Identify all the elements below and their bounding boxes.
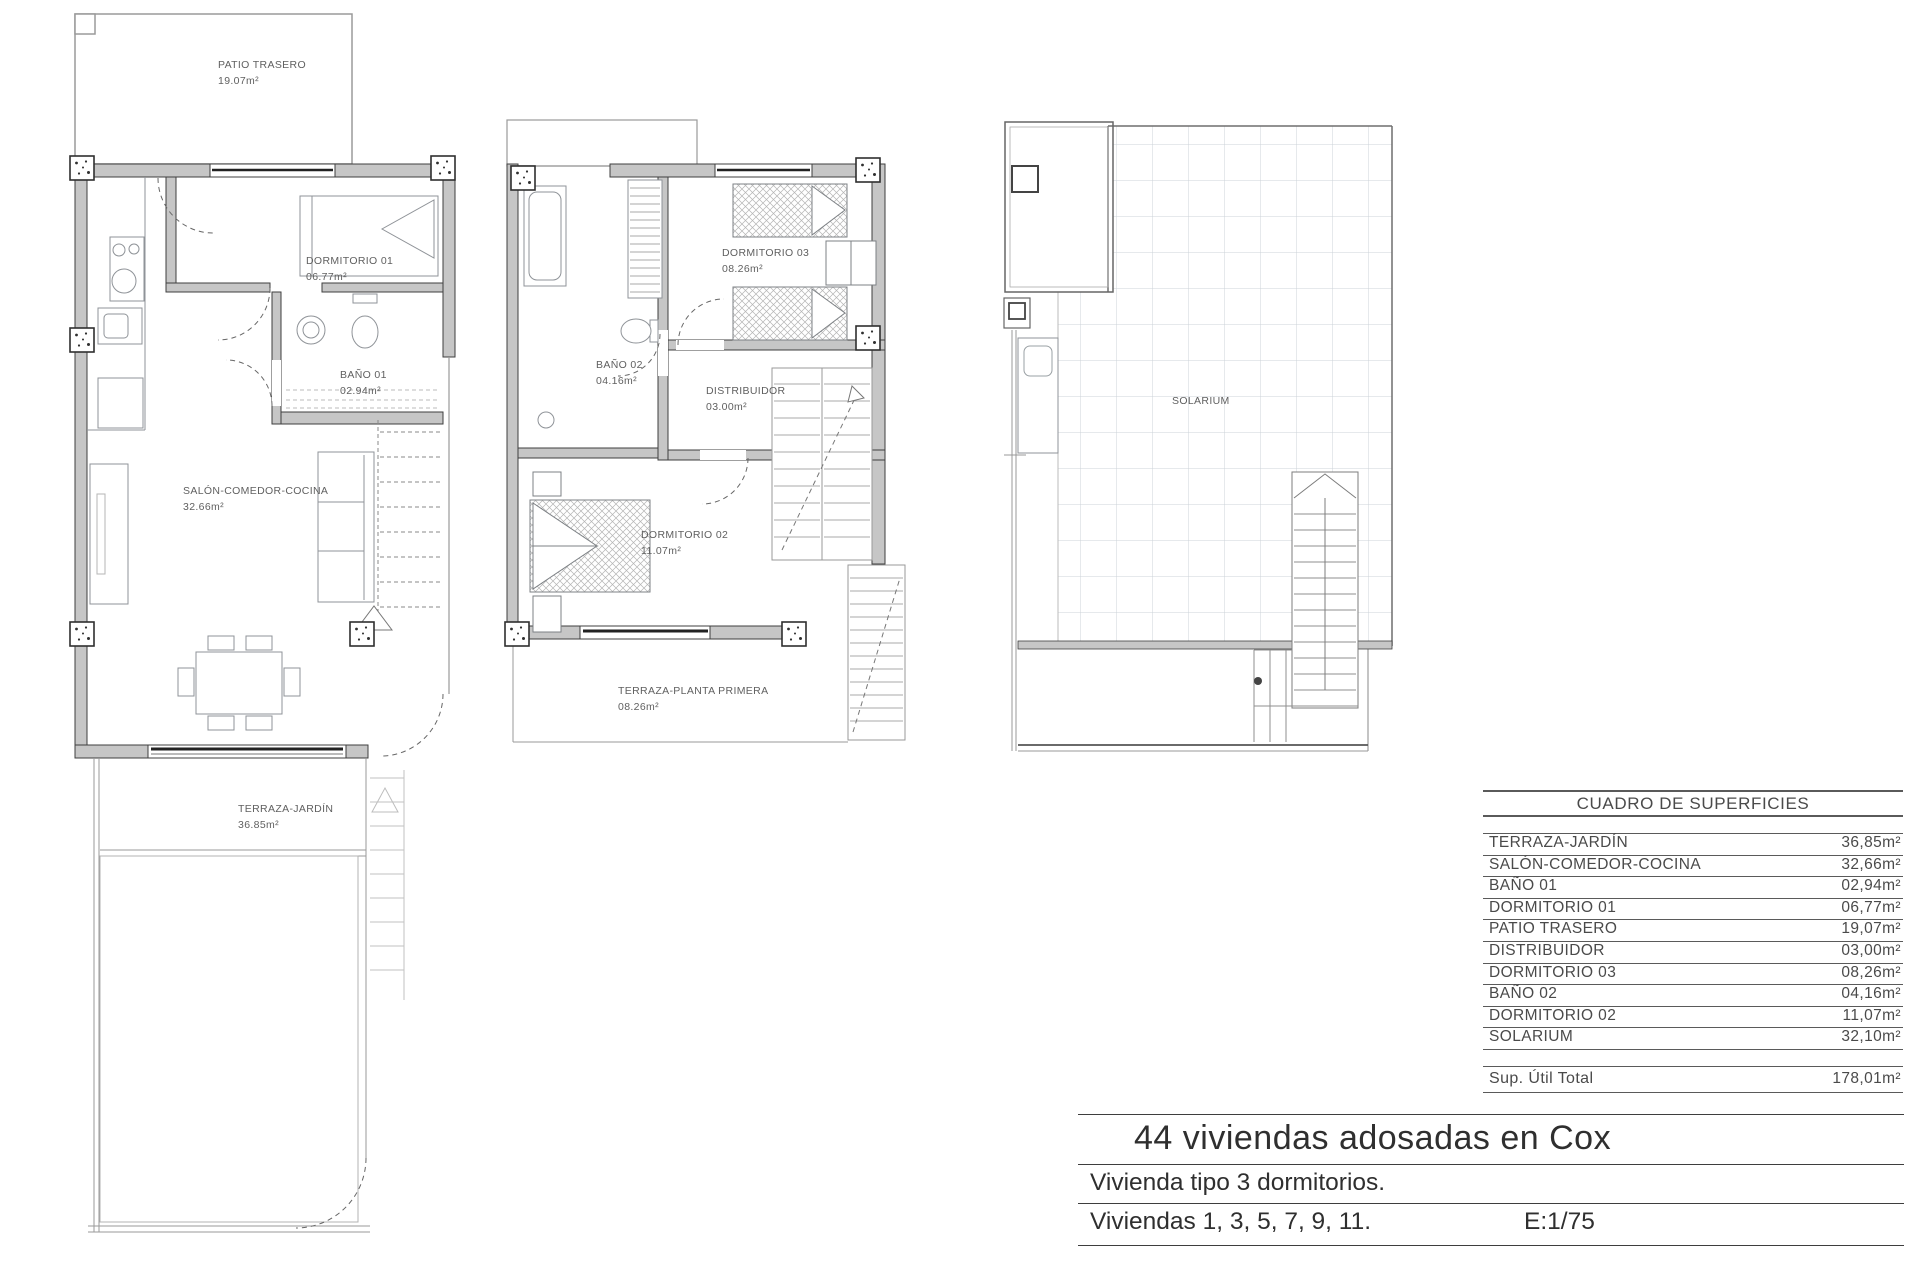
row-label: DORMITORIO 02 [1489,1007,1616,1025]
kitchen-counter [87,177,145,430]
patio-outline [75,14,352,164]
room-area: 19.07m² [218,74,306,90]
room-area: 32.66m² [183,500,328,516]
row-value: 06,77m² [1841,899,1901,917]
surface-table-rows: TERRAZA-JARDÍN 36,85m² SALÓN-COMEDOR-COC… [1483,833,1903,1050]
first-floor-plan [505,120,905,742]
double-bed [530,472,650,632]
title-block: 44 viviendas adosadas en Cox Vivienda ti… [1078,1114,1904,1246]
floor-plan-sheet: PATIO TRASERO 19.07m² DORMITORIO 01 06.7… [0,0,1920,1280]
room-area: 08.26m² [618,700,768,716]
room-name: DISTRIBUIDOR [706,384,785,400]
room-label-bano-02: BAÑO 02 04.16m² [596,358,643,390]
row-label: BAÑO 02 [1489,985,1557,1003]
row-value: 36,85m² [1841,834,1901,852]
room-name: TERRAZA-JARDÍN [238,802,333,818]
room-label-distribuidor: DISTRIBUIDOR 03.00m² [706,384,785,416]
surface-table-title: CUADRO DE SUPERFICIES [1483,790,1903,817]
row-label: SOLARIUM [1489,1028,1573,1046]
room-name: DORMITORIO 01 [306,254,393,270]
total-value: 178,01m² [1832,1070,1901,1088]
ground-floor-plan [70,14,455,1232]
row-label: BAÑO 01 [1489,877,1557,895]
row-value: 08,26m² [1841,964,1901,982]
table-row: SOLARIUM 32,10m² [1483,1028,1903,1050]
room-label-dormitorio-02: DORMITORIO 02 11.07m² [641,528,728,560]
units-list: Viviendas 1, 3, 5, 7, 9, 11. [1090,1208,1371,1235]
room-area: 36.85m² [238,818,333,834]
room-area: 11.07m² [641,544,728,560]
room-name: DORMITORIO 02 [641,528,728,544]
room-label-bano-01: BAÑO 01 02.94m² [340,368,387,400]
table-row: PATIO TRASERO 19,07m² [1483,920,1903,942]
row-label: DORMITORIO 01 [1489,899,1616,917]
room-label-dormitorio-03: DORMITORIO 03 08.26m² [722,246,809,278]
room-name: BAÑO 01 [340,368,387,384]
stairs [772,368,872,560]
room-area: 06.77m² [306,270,393,286]
dining-table [178,636,300,730]
room-name: BAÑO 02 [596,358,643,374]
room-area: 02.94m² [340,384,387,400]
surface-table-total: Sup. Útil Total 178,01m² [1483,1066,1903,1093]
table-row: DISTRIBUIDOR 03,00m² [1483,942,1903,964]
room-area: 08.26m² [722,262,809,278]
room-name: PATIO TRASERO [218,58,306,74]
row-label: DORMITORIO 03 [1489,964,1616,982]
dwelling-type: Vivienda tipo 3 dormitorios. [1078,1165,1904,1204]
row-label: SALÓN-COMEDOR-COCINA [1489,856,1701,874]
total-label: Sup. Útil Total [1489,1070,1593,1088]
row-label: TERRAZA-JARDÍN [1489,834,1628,852]
table-row: SALÓN-COMEDOR-COCINA 32,66m² [1483,856,1903,878]
units-row: Viviendas 1, 3, 5, 7, 9, 11. E:1/75 [1078,1204,1904,1246]
row-value: 19,07m² [1841,920,1901,938]
chimney [1012,166,1038,192]
room-label-salon: SALÓN-COMEDOR-COCINA 32.66m² [183,484,328,516]
room-label-patio-trasero: PATIO TRASERO 19.07m² [218,58,306,90]
room-area: 03.00m² [706,400,785,416]
room-name: DORMITORIO 03 [722,246,809,262]
table-row: TERRAZA-JARDÍN 36,85m² [1483,834,1903,856]
table-row: DORMITORIO 01 06,77m² [1483,899,1903,921]
roof-plan [1004,122,1392,751]
table-row: BAÑO 01 02,94m² [1483,877,1903,899]
row-value: 03,00m² [1841,942,1901,960]
row-value: 32,10m² [1841,1028,1901,1046]
project-title: 44 viviendas adosadas en Cox [1078,1114,1904,1165]
room-label-terraza-jardin: TERRAZA-JARDÍN 36.85m² [238,802,333,834]
table-row: BAÑO 02 04,16m² [1483,985,1903,1007]
surface-table: CUADRO DE SUPERFICIES TERRAZA-JARDÍN 36,… [1483,790,1903,1093]
neighbour-stairs [370,770,404,1000]
room-label-dormitorio-01: DORMITORIO 01 06.77m² [306,254,393,286]
wardrobe [628,180,662,298]
row-label: PATIO TRASERO [1489,920,1617,938]
row-label: DISTRIBUIDOR [1489,942,1605,960]
table-row: DORMITORIO 02 11,07m² [1483,1007,1903,1029]
room-name: SOLARIUM [1172,394,1230,410]
table-row: DORMITORIO 03 08,26m² [1483,964,1903,986]
row-value: 11,07m² [1842,1007,1901,1025]
room-label-terraza-planta-primera: TERRAZA-PLANTA PRIMERA 08.26m² [618,684,768,716]
room-name: TERRAZA-PLANTA PRIMERA [618,684,768,700]
row-value: 04,16m² [1841,985,1901,1003]
sofa [318,452,374,602]
room-label-solarium: SOLARIUM [1172,394,1230,410]
room-area: 04.16m² [596,374,643,390]
tv-bench [90,464,128,604]
room-name: SALÓN-COMEDOR-COCINA [183,484,328,500]
roof-overhang [507,120,697,166]
row-value: 02,94m² [1841,877,1901,895]
outdoor-stairs [848,565,905,740]
drawing-scale: E:1/75 [1524,1208,1595,1236]
bench [1018,338,1058,453]
row-value: 32,66m² [1841,856,1901,874]
